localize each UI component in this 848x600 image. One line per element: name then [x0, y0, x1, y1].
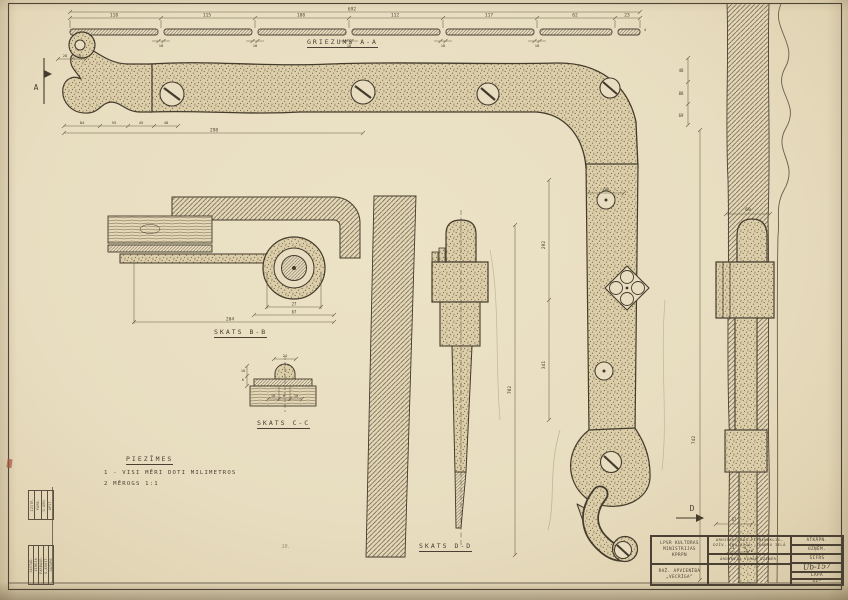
title-block-empty-cell: [708, 564, 791, 585]
dim-label: 108: [297, 13, 305, 19]
stamp-entry: DATUMS: [49, 546, 53, 584]
dim-label: 67: [292, 310, 297, 315]
section-a-a-bars: [70, 29, 640, 35]
title-block-row: UZŅĒM.: [791, 545, 843, 554]
dim-label: 117: [485, 13, 493, 19]
object-line: DZĪV. ĒKA RĪGĀ, SKĀRŅU IELĀ 4/6: [709, 542, 790, 552]
dim-label: 45: [139, 120, 144, 125]
signature-stamp: IZSTR. PĀRB. G.ARH. APST.: [28, 490, 54, 520]
title-block-code-row: Ub-157: [791, 563, 843, 572]
view-b-b-drawing: [108, 197, 360, 299]
dim-label: 18: [77, 53, 82, 58]
notes-block: PIEZĪMES 1 - VISI MĒRI DOTI MILIMETROS 2…: [104, 446, 236, 487]
org2-line: „VECRĪGA”: [666, 575, 693, 581]
title-block-row: LAPA: [791, 572, 843, 579]
dim-label: 18: [253, 43, 258, 48]
dim-label: 8: [283, 394, 285, 398]
dim-label: 10: [241, 369, 245, 373]
title-block-row: UZ—: [791, 579, 843, 585]
handwritten-code: Ub-157: [803, 563, 832, 572]
dim-label: 69: [679, 113, 684, 118]
pencil-note: 10.: [281, 544, 290, 550]
view-d-d-drawing: [366, 196, 488, 557]
dim-label: 18: [159, 43, 164, 48]
dim-label: 18: [535, 43, 540, 48]
view-c-c-drawing: [250, 356, 316, 412]
signature-stamp: SASTĀD. ZĪMĒJA PĀRBAUD. G.ARHIT. DATUMS: [28, 545, 54, 585]
title-block-object-cell: ARHITEKTŪRAS PIEMINEKLIS— DZĪV. ĒKA RĪGĀ…: [708, 536, 791, 554]
title-block-part-cell: ĀRDURVJU VIRAS DZINĒR.: [708, 554, 791, 564]
dim-label: 18: [441, 43, 446, 48]
dim-label: 84: [80, 120, 85, 125]
finial-left-scroll: [63, 49, 152, 113]
strap-horizontal: [150, 63, 638, 168]
dim-label: 69: [745, 207, 751, 213]
dim-label: 55: [112, 120, 117, 125]
dim-label: 88: [679, 91, 684, 96]
dim-label: 10: [294, 394, 298, 398]
dim-label: 23: [624, 13, 630, 19]
label-view-b-b: SKATS B-B: [214, 328, 267, 338]
scanned-drawing-sheet: 6921181151081121176223181818181842818845…: [0, 0, 848, 600]
dim-label: 204: [226, 317, 234, 323]
finial-knob-hole: [75, 40, 85, 50]
note-item: 2 MĒROGS 1:1: [104, 481, 236, 487]
title-block-org-cell: LPSR KULTŪRAS MINISTRIJAS KPRPN: [651, 536, 708, 564]
dim-label: 62: [572, 13, 578, 19]
dim-label: 24: [283, 353, 288, 358]
dim-label: 4: [644, 27, 647, 32]
cut-arrow-a: [44, 70, 52, 78]
dim-label: 48: [679, 68, 684, 73]
notes-heading: PIEZĪMES: [126, 455, 173, 465]
title-block-row: ŠIFRS: [791, 554, 843, 563]
dim-label: 10: [271, 394, 275, 398]
section-marker-letter: D: [690, 504, 695, 513]
stamp-entry: APST.: [48, 491, 53, 519]
org-line: KPRPN: [672, 553, 687, 559]
label-view-d-d: SKATS D-D: [419, 542, 472, 552]
dim-label: 692: [348, 7, 356, 13]
masonry-jamb: [366, 196, 416, 557]
section-marker-letter: A: [34, 83, 39, 92]
dim-label: 28: [63, 53, 68, 58]
dim-label: 115: [203, 13, 211, 19]
label-view-c-c: SKATS C-C: [257, 419, 310, 429]
dim-label: 702: [507, 386, 513, 394]
dim-label: 6: [242, 378, 244, 382]
dim-label: 298: [210, 128, 218, 134]
label-section-a-a: GRIEZUMS A-A: [307, 38, 378, 48]
dim-label: 67: [732, 517, 737, 522]
note-item: 1 - VISI MĒRI DOTI MILIMETROS: [104, 470, 236, 476]
title-block-row: ATKĀPN.: [791, 536, 843, 545]
dim-label: 27: [292, 302, 297, 307]
hinge-leaf-section: [120, 254, 268, 263]
technical-drawing-canvas: 6921181151081121176223181818181842818845…: [0, 0, 848, 600]
dim-label: 60: [603, 187, 609, 193]
title-block: LPSR KULTŪRAS MINISTRIJAS KPRPN RAŽ. APV…: [650, 535, 844, 586]
dim-label: 48: [164, 120, 169, 125]
dim-label: 292: [541, 241, 547, 249]
dim-label: 341: [541, 361, 547, 369]
dim-label: 742: [691, 436, 697, 444]
title-block-org2-cell: RAŽ. APVIENĪBA „VECRĪGA”: [651, 564, 708, 585]
dim-label: 118: [110, 13, 118, 19]
dim-label: 112: [391, 13, 399, 19]
moulding-profile-line: [777, 4, 790, 583]
part-name: ĀRDURVJU VIRAS DZINĒR.: [720, 556, 779, 561]
